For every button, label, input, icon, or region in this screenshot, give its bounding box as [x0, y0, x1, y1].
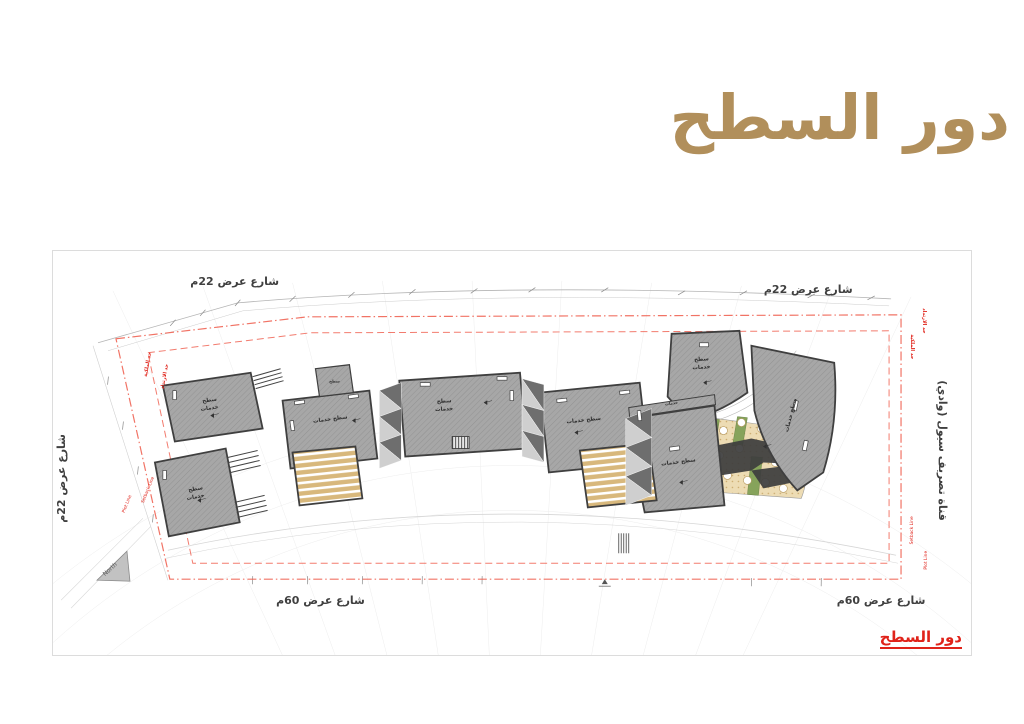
- roof-ladder-hatch: [452, 437, 469, 449]
- pergola-roofs: [293, 444, 657, 508]
- plot-line-label-right: Plot Line: [923, 551, 929, 570]
- building-small-top-label: سطح: [329, 379, 340, 384]
- site-plan-drawing: North سطح خدمات سطح خدمات سطح خدمات سطح …: [53, 251, 971, 655]
- plan-box: North سطح خدمات سطح خدمات سطح خدمات سطح …: [52, 250, 972, 656]
- street-label-bottom-left: شارع عرض 60م: [276, 594, 365, 607]
- connector-strip-2: [522, 379, 544, 463]
- street-label-bottom-right: شارع عرض 60م: [837, 594, 926, 607]
- north-arrow: North: [97, 551, 130, 581]
- building-upper-wedge-label-2: خدمات: [692, 364, 710, 371]
- street-label-left: شارع عرض 22م: [55, 434, 68, 523]
- page-title: دور السطح: [670, 84, 1010, 152]
- building-center-label-2: خدمات: [435, 406, 453, 413]
- pergola-left: [293, 447, 363, 506]
- building-center-label-1: سطح: [437, 398, 452, 405]
- street-label-top-left: شارع عرض 22م: [190, 275, 279, 288]
- property-line-label-tr: حد الملكية: [909, 334, 915, 359]
- building-lower-left: [155, 449, 240, 537]
- setback-line-label-right: Setback Line: [909, 516, 915, 544]
- channel-label-right: قناة تصريف سيول (وادي): [936, 380, 949, 521]
- street-label-top-right: شارع عرض 22م: [764, 283, 853, 296]
- footer-plan-label: دور السطح: [880, 628, 962, 649]
- survey-marker: [599, 579, 611, 586]
- connector-strip-1: [379, 383, 401, 469]
- bottom-hatch-mark: [619, 533, 629, 553]
- plot-line-label-left: Plot Line: [121, 494, 134, 514]
- slide-page: دور السطح: [0, 0, 1024, 724]
- setback-line-label-tr: حد الارتداد: [921, 308, 927, 334]
- connector-strip-3: [626, 409, 652, 506]
- building-upper-wedge-label-1: سطح: [694, 356, 709, 363]
